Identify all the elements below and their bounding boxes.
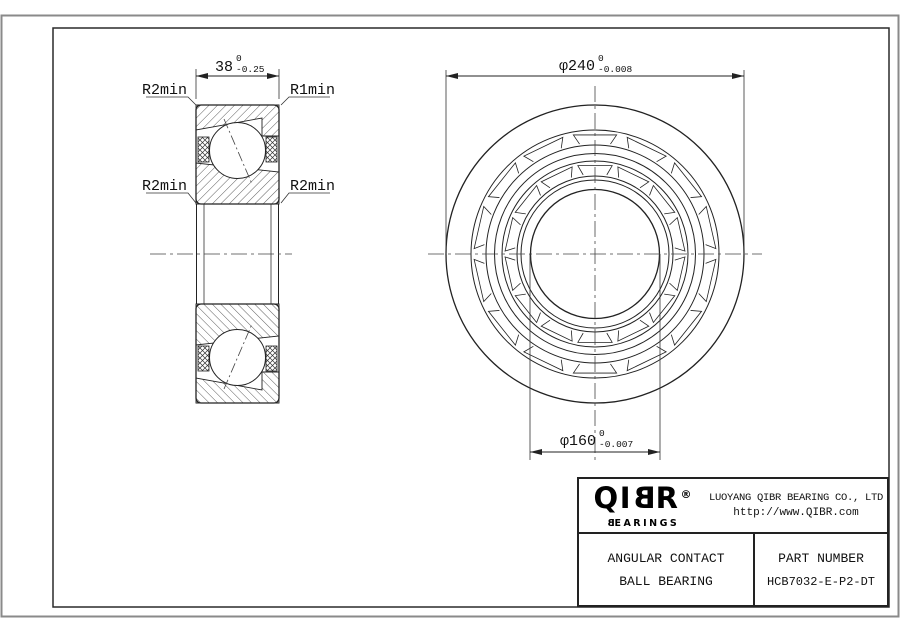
front-view: φ240 0 -0.008 φ160 0 -0.007	[428, 53, 762, 462]
cage-pocket	[541, 320, 572, 341]
company-website: http://www.QIBR.com	[733, 507, 858, 519]
title-block-lower-row: ANGULAR CONTACT BALL BEARING PART NUMBER…	[579, 534, 887, 605]
part-number-label: PART NUMBER	[778, 551, 864, 566]
ball	[210, 123, 266, 179]
label-r2min-top-left: R2min	[142, 82, 187, 99]
logo-sub-text: EARINGS	[614, 518, 679, 529]
cage-pocket	[699, 206, 716, 248]
company-name: LUOYANG QIBR BEARING CO., LTD	[709, 492, 883, 504]
label-r1min-top-right: R1min	[290, 82, 335, 99]
bearing-section-top	[196, 105, 279, 204]
company-info: LUOYANG QIBR BEARING CO., LTD http://www…	[705, 479, 887, 532]
registered-trademark-icon: ®	[680, 482, 691, 508]
part-number-cell: PART NUMBER HCB7032-E-P2-DT	[755, 534, 887, 605]
cage-pocket	[474, 206, 491, 248]
logo-text-2: R	[656, 481, 680, 515]
cage-section-left	[198, 137, 209, 162]
cross-section-view: 38 0 -0.25 R2min R1min R2min R2min	[142, 53, 335, 403]
logo-text: QI	[594, 481, 632, 515]
dim-width-tol-upper: 0	[236, 53, 242, 64]
cage-pocket	[699, 259, 716, 301]
cage-pocket	[474, 259, 491, 301]
part-number-value: HCB7032-E-P2-DT	[767, 575, 875, 589]
product-type-line1: ANGULAR CONTACT	[607, 551, 724, 566]
logo-wordmark: QIBR®	[594, 485, 691, 518]
cage-section-right	[266, 137, 277, 162]
label-r2min-mid-right: R2min	[290, 178, 335, 195]
logo-subtitle: BEARINGS	[605, 518, 680, 529]
product-type-line2: BALL BEARING	[619, 574, 713, 589]
dim-width-value: 38	[215, 59, 233, 76]
dim-bore-value: φ160	[560, 433, 596, 450]
title-block-header-row: QIBR® BEARINGS LUOYANG QIBR BEARING CO.,…	[579, 479, 887, 534]
dim-outer-tol-upper: 0	[598, 53, 604, 64]
company-logo: QIBR® BEARINGS	[579, 479, 705, 532]
cage-pocket	[618, 320, 649, 341]
dim-bore-tol-lower: -0.007	[599, 439, 633, 450]
logo-mirrored-b: B	[632, 485, 656, 511]
logo-sub-mirrored-b: B	[605, 518, 615, 529]
dimension-width: 38 0 -0.25	[196, 53, 279, 99]
dim-outer-value: φ240	[559, 58, 595, 75]
label-r2min-mid-left: R2min	[142, 178, 187, 195]
dim-outer-tol-lower: -0.008	[598, 64, 633, 75]
cage-pocket	[541, 167, 572, 188]
dim-width-tol-lower: -0.25	[236, 64, 265, 75]
product-type-cell: ANGULAR CONTACT BALL BEARING	[579, 534, 755, 605]
cage-pocket	[618, 167, 649, 188]
dim-bore-tol-upper: 0	[599, 428, 605, 439]
title-block: QIBR® BEARINGS LUOYANG QIBR BEARING CO.,…	[577, 477, 889, 607]
drawing-sheet: 38 0 -0.25 R2min R1min R2min R2min	[0, 0, 900, 636]
bearing-section-bottom	[196, 304, 279, 403]
